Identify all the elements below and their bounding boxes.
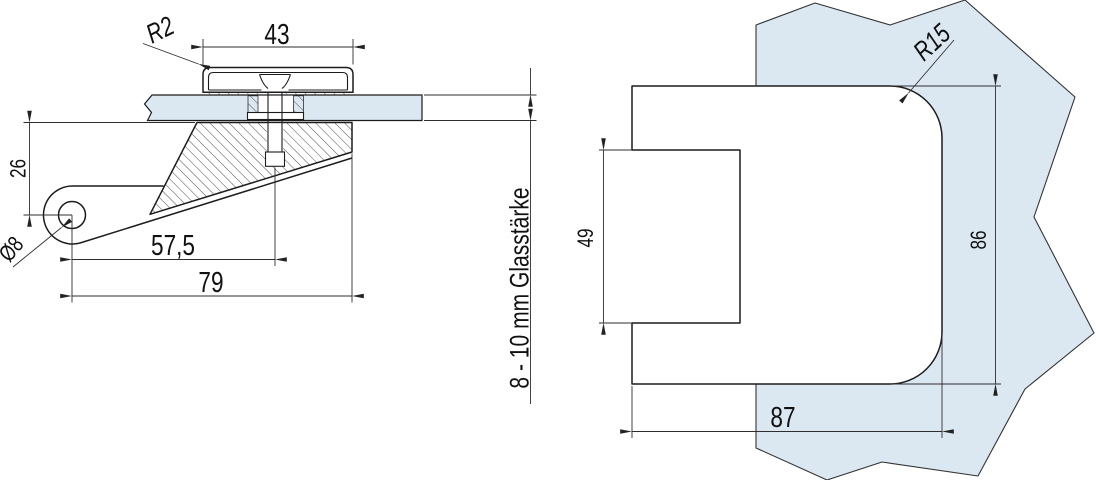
dim-cap-width-label: 43: [264, 17, 289, 50]
glass-hole: [258, 96, 294, 112]
dim-notch-height-label: 49: [574, 228, 599, 247]
bushing-left: [248, 96, 258, 113]
dim-glass-thickness-label: 8 - 10 mm Glasstärke: [505, 187, 535, 388]
dim-cap-radius-label: R2: [142, 11, 180, 50]
washer: [248, 113, 304, 120]
leader-cap-radius: [143, 44, 199, 65]
dim-screw-offset-label: 57,5: [151, 228, 195, 261]
clamp-cap: [203, 68, 353, 93]
dim-overall-length-label: 79: [198, 265, 223, 298]
wedge-clamp-body: [150, 123, 352, 215]
screw-channel: [267, 123, 284, 152]
dim-body-width-label: 87: [770, 400, 795, 433]
screw-tip-pocket: [266, 152, 285, 166]
bushing-right: [294, 96, 304, 113]
dim-pivot-hole-label: Ø8: [0, 232, 29, 267]
glass-door-hinge-drawing: 43 R2 26 Ø8 57,5 79 8 - 10 mm Glasstärke: [0, 0, 1096, 480]
dim-pivot-height-label: 26: [7, 159, 32, 178]
hinge-body-plate: [632, 86, 942, 384]
dim-body-height-label: 86: [967, 230, 992, 249]
right-view-front: 49 86 87 R15: [574, 0, 1094, 480]
left-view-section: 43 R2 26 Ø8 57,5 79 8 - 10 mm Glasstärke: [0, 11, 536, 404]
technical-drawing-page: 43 R2 26 Ø8 57,5 79 8 - 10 mm Glasstärke: [0, 0, 1096, 480]
